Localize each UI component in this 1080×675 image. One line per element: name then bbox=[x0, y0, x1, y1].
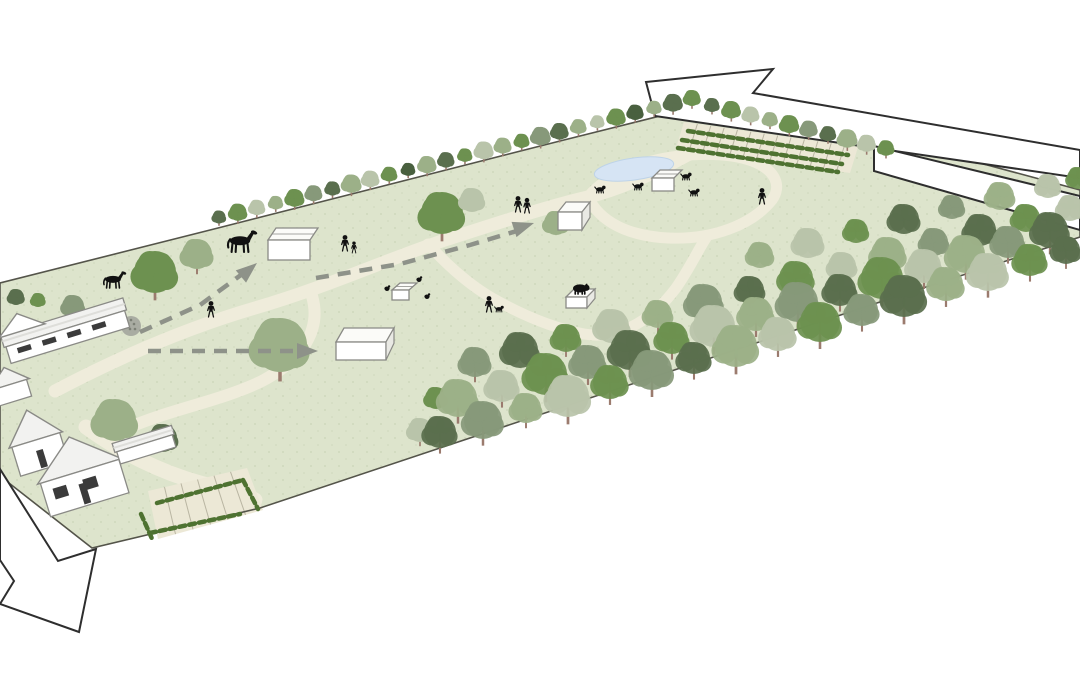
canopy-lobe bbox=[1063, 237, 1077, 251]
canopy-lobe bbox=[769, 113, 776, 120]
dotted-tree-dot bbox=[133, 323, 136, 326]
tree-canopy bbox=[530, 127, 551, 145]
canopy-lobe bbox=[997, 183, 1011, 197]
canopy-lobe bbox=[520, 134, 527, 141]
canopy-lobe bbox=[470, 189, 482, 201]
shelter-front bbox=[336, 342, 386, 360]
hedgerow-tree bbox=[304, 185, 322, 204]
canopy-lobe bbox=[585, 346, 602, 363]
canopy-lobe bbox=[454, 381, 473, 400]
canopy-lobe bbox=[255, 200, 263, 208]
tree-canopy bbox=[590, 115, 605, 128]
canopy-lobe bbox=[805, 229, 820, 244]
canopy-lobe bbox=[710, 307, 731, 328]
canopy-lobe bbox=[1027, 245, 1043, 261]
hedgerow-tree bbox=[513, 134, 529, 151]
canopy-lobe bbox=[962, 237, 981, 256]
tree-canopy bbox=[513, 134, 529, 148]
canopy-lobe bbox=[563, 325, 577, 339]
canopy-lobe bbox=[837, 275, 853, 291]
canopy-lobe bbox=[827, 127, 835, 135]
canopy-lobe bbox=[900, 277, 921, 298]
canopy-lobe bbox=[747, 277, 761, 291]
canopy-lobe bbox=[479, 403, 498, 422]
canopy-lobe bbox=[71, 296, 82, 307]
canopy-lobe bbox=[499, 371, 515, 387]
canopy-lobe bbox=[542, 355, 563, 376]
canopy-lobe bbox=[37, 294, 44, 301]
canopy-lobe bbox=[445, 153, 453, 161]
canopy-lobe bbox=[1046, 175, 1058, 187]
canopy-lobe bbox=[691, 343, 707, 359]
canopy-lobe bbox=[331, 182, 338, 189]
canopy-lobe bbox=[350, 175, 359, 184]
tree-canopy bbox=[473, 141, 493, 159]
canopy-lobe bbox=[312, 186, 320, 194]
chicken-head bbox=[420, 276, 422, 278]
tree-canopy bbox=[284, 189, 304, 207]
canopy-lobe bbox=[711, 99, 718, 106]
tree-canopy bbox=[401, 163, 416, 176]
tree-canopy bbox=[417, 156, 437, 173]
dog-head bbox=[602, 186, 606, 190]
dog-head bbox=[640, 183, 644, 187]
dog-head bbox=[688, 173, 692, 177]
canopy-lobe bbox=[839, 253, 853, 267]
canopy-lobe bbox=[275, 320, 302, 347]
canopy-lobe bbox=[236, 204, 245, 213]
person-head bbox=[209, 301, 214, 306]
tree-canopy bbox=[211, 211, 226, 224]
canopy-lobe bbox=[577, 120, 584, 127]
tree-canopy bbox=[361, 171, 380, 188]
chicken-head bbox=[388, 285, 390, 287]
canopy-lobe bbox=[671, 95, 680, 104]
canopy-lobe bbox=[854, 220, 866, 232]
canopy-lobe bbox=[807, 121, 815, 129]
tree-canopy bbox=[550, 123, 569, 140]
stable-shelter bbox=[268, 228, 318, 260]
canopy-lobe bbox=[1067, 196, 1080, 209]
canopy-lobe bbox=[194, 240, 209, 255]
dog-head bbox=[696, 189, 700, 193]
canopy-lobe bbox=[437, 417, 453, 433]
field-shelter bbox=[336, 328, 394, 360]
person-head bbox=[352, 242, 355, 245]
canopy-lobe bbox=[14, 290, 22, 298]
canopy-lobe bbox=[865, 135, 874, 144]
woodland-tree bbox=[1034, 174, 1061, 198]
canopy-lobe bbox=[482, 142, 491, 151]
canopy-lobe bbox=[607, 366, 624, 383]
canopy-lobe bbox=[931, 229, 945, 243]
canopy-lobe bbox=[464, 149, 471, 156]
person-head bbox=[525, 198, 530, 203]
canopy-lobe bbox=[845, 130, 854, 139]
canopy-lobe bbox=[1046, 213, 1064, 231]
canopy-lobe bbox=[369, 171, 377, 179]
horse-leg bbox=[119, 281, 120, 288]
canopy-lobe bbox=[425, 157, 434, 166]
canopy-lobe bbox=[523, 394, 538, 409]
tree-canopy bbox=[437, 152, 454, 167]
canopy-lobe bbox=[921, 250, 938, 267]
canopy-lobe bbox=[700, 285, 718, 303]
canopy-lobe bbox=[407, 163, 414, 170]
canopy-lobe bbox=[943, 268, 960, 285]
shelter-front bbox=[652, 178, 674, 191]
shelter-roof bbox=[336, 328, 394, 342]
shelter-front bbox=[268, 240, 310, 260]
canopy-lobe bbox=[732, 327, 753, 348]
shelter-front bbox=[392, 290, 409, 300]
hedgerow-tree bbox=[570, 119, 587, 136]
tree-canopy bbox=[606, 108, 626, 125]
tree-canopy bbox=[381, 167, 398, 182]
shelter-front bbox=[558, 212, 582, 230]
tree-canopy bbox=[626, 105, 643, 120]
pig-head bbox=[583, 285, 589, 291]
canopy-lobe bbox=[788, 116, 797, 125]
canopy-lobe bbox=[775, 318, 792, 335]
canopy-lobe bbox=[794, 284, 814, 304]
canopy-lobe bbox=[596, 116, 603, 123]
tree-canopy bbox=[341, 174, 362, 192]
canopy-lobe bbox=[501, 138, 509, 146]
canopy-lobe bbox=[884, 141, 892, 149]
tree-canopy bbox=[248, 200, 265, 215]
tree-canopy bbox=[493, 138, 511, 154]
canopy-lobe bbox=[564, 377, 585, 398]
dog-head bbox=[501, 306, 504, 309]
canopy-lobe bbox=[539, 128, 548, 137]
person-head bbox=[516, 196, 521, 201]
canopy-lobe bbox=[655, 301, 669, 315]
hedgerow-tree bbox=[590, 115, 605, 130]
canopy-lobe bbox=[388, 167, 395, 174]
canopy-lobe bbox=[730, 102, 739, 111]
canopy-lobe bbox=[950, 196, 962, 208]
canopy-lobe bbox=[885, 238, 902, 255]
canopy-lobe bbox=[859, 295, 875, 311]
hedgerow-tree bbox=[248, 200, 265, 218]
canopy-lobe bbox=[1023, 205, 1037, 219]
canopy-lobe bbox=[472, 348, 487, 363]
tree-canopy bbox=[268, 196, 283, 210]
horse-leg bbox=[248, 243, 249, 252]
canopy-lobe bbox=[111, 401, 132, 422]
hedgerow-tree bbox=[211, 211, 226, 226]
canopy-lobe bbox=[653, 101, 660, 108]
canopy-lobe bbox=[977, 215, 993, 231]
canopy-lobe bbox=[753, 298, 770, 315]
horse-leg bbox=[232, 243, 233, 252]
canopy-lobe bbox=[690, 91, 698, 99]
canopy-lobe bbox=[749, 107, 757, 115]
canopy-lobe bbox=[984, 255, 1003, 274]
tree-canopy bbox=[1034, 174, 1061, 198]
person-head bbox=[760, 188, 765, 193]
dotted-tree-dot bbox=[134, 328, 137, 331]
canopy-lobe bbox=[274, 196, 281, 203]
hedgerow-tree bbox=[381, 167, 398, 184]
shelter-front bbox=[566, 297, 587, 308]
canopy-lobe bbox=[558, 124, 566, 132]
iso-shed bbox=[558, 202, 590, 230]
tree-canopy bbox=[324, 181, 340, 195]
hedgerow-tree bbox=[324, 181, 340, 198]
tree-canopy bbox=[457, 148, 472, 162]
canopy-lobe bbox=[648, 352, 668, 372]
canopy-lobe bbox=[1005, 227, 1021, 243]
canopy-lobe bbox=[793, 262, 810, 279]
hedgerow-tree bbox=[457, 148, 472, 164]
tree-canopy bbox=[304, 185, 322, 201]
hedgerow-tree bbox=[401, 163, 416, 178]
canopy-lobe bbox=[816, 304, 836, 324]
canopy-lobe bbox=[516, 333, 534, 351]
canopy-lobe bbox=[609, 310, 626, 327]
hedgerow-tree bbox=[437, 152, 454, 170]
canopy-lobe bbox=[438, 194, 459, 215]
dotted-tree-dot bbox=[130, 319, 133, 322]
canopy-lobe bbox=[901, 205, 916, 220]
tree-canopy bbox=[228, 204, 248, 221]
canopy-lobe bbox=[626, 332, 646, 352]
masterplan-svg bbox=[0, 0, 1080, 675]
dotted-tree-dot bbox=[129, 328, 132, 331]
canopy-lobe bbox=[757, 243, 770, 256]
canopy-lobe bbox=[293, 190, 302, 199]
chicken-head bbox=[428, 293, 430, 295]
horse-leg bbox=[107, 281, 108, 288]
canopy-lobe bbox=[151, 253, 172, 274]
hedgerow-tree bbox=[268, 196, 283, 212]
person-head bbox=[487, 296, 492, 301]
person-head bbox=[343, 235, 348, 240]
canopy-lobe bbox=[634, 105, 642, 113]
canopy-lobe bbox=[615, 109, 624, 118]
tree-canopy bbox=[570, 119, 587, 134]
masterplan-illustration bbox=[0, 0, 1080, 675]
canopy-lobe bbox=[218, 211, 225, 218]
canopy-lobe bbox=[669, 323, 685, 339]
